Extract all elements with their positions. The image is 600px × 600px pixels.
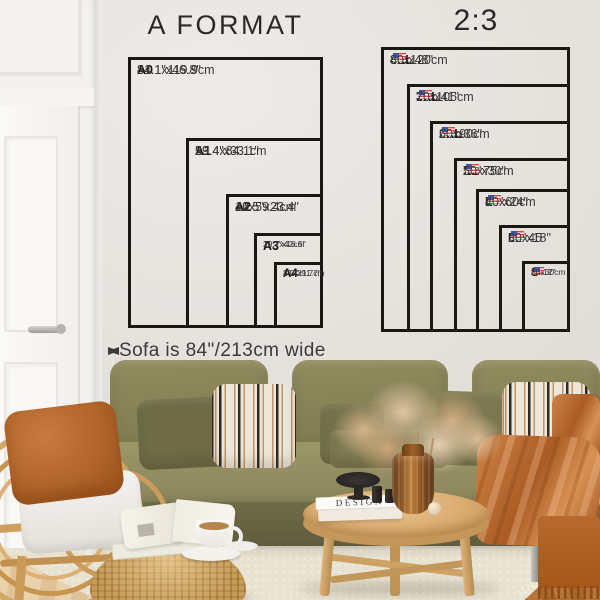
size-rect-2xl: 2XL 24"x36"60x90cm XL 20"x30"50x75cm L 1… — [430, 121, 570, 332]
size-cm: 80x120cm — [390, 53, 448, 67]
size-cm: 21x29.7cm — [283, 268, 325, 278]
rust-throw-blanket — [538, 516, 600, 588]
a-format-title: A FORMAT — [128, 10, 323, 41]
size-rect-xl: XL 20"x30"50x75cm L 16"x24"40x60cm M 12"… — [454, 158, 570, 332]
door-handle — [28, 326, 62, 333]
size-rect-a1: A1 23.4"x33.1"59.4x84.1cm A2 16.5"x23.4"… — [186, 138, 323, 328]
coffee-cup — [196, 520, 232, 548]
size-cm: 40x60cm — [485, 195, 536, 209]
size-rect-4xl: 4XL 32"x48"80x120cm 3XL 27"x41"70x105cm … — [381, 47, 570, 332]
size-cm: 20x30cm — [531, 267, 566, 277]
size-rect-a2: A2 16.5"x23.4"42x59.4cm A3 11.7"x16.5"29… — [226, 194, 323, 328]
size-rect-a4: A4 8.3"x11.7"21x29.7cm — [274, 262, 323, 328]
wall-molding-panel — [0, 0, 82, 76]
size-rect-a3: A3 11.7"x16.5"29.7x42cm A4 8.3"x11.7"21x… — [254, 233, 323, 328]
blanket-fringe — [538, 586, 600, 599]
black-candle-holder — [372, 486, 382, 503]
poster-size-guide-scene: DESIGN A FORMAT A0 31.1"x46.8"84.1x119.9… — [0, 0, 600, 600]
arrow-right-icon — [108, 347, 119, 355]
size-rect-s: S 8"x12"20x30cm — [522, 261, 570, 332]
size-cm: 60x90cm — [439, 127, 490, 141]
sofa-width-annotation: Sofa is 84"/213cm wide — [108, 338, 594, 364]
wooden-ball — [428, 502, 441, 515]
door-panel-upper — [4, 136, 58, 332]
size-cm: 50x75cm — [463, 164, 514, 178]
size-cm: 70x105cm — [416, 90, 474, 104]
size-rect-a0: A0 31.1"x46.8"84.1x119.9cm A1 23.4"x33.1… — [128, 57, 323, 328]
size-rect-l: L 16"x24"40x60cm M 12"x18"30x45 S — [476, 189, 570, 332]
ratio-2-3-title: 2:3 — [381, 4, 571, 38]
rust-pillow — [3, 400, 126, 507]
size-cm: 29.7x42cm — [263, 239, 305, 249]
striped-pillow — [212, 384, 296, 468]
bowl-foot — [347, 495, 370, 500]
size-cm: 42x59.4cm — [235, 200, 296, 214]
size-cm: 84.1x119.9cm — [137, 63, 215, 77]
door-lintel — [0, 88, 97, 106]
sofa-width-label: Sofa is 84"/213cm wide — [108, 340, 337, 362]
size-cm: 59.4x84.1cm — [195, 144, 267, 158]
book-photo — [137, 523, 155, 537]
size-rect-3xl: 3XL 27"x41"70x105cm 2XL 24"x36"60x90cm X… — [407, 84, 570, 332]
book — [318, 508, 402, 522]
size-rect-m: M 12"x18"30x45 S 8"x12"20x30cm — [499, 225, 570, 332]
size-cm: 30x45 — [508, 231, 542, 245]
